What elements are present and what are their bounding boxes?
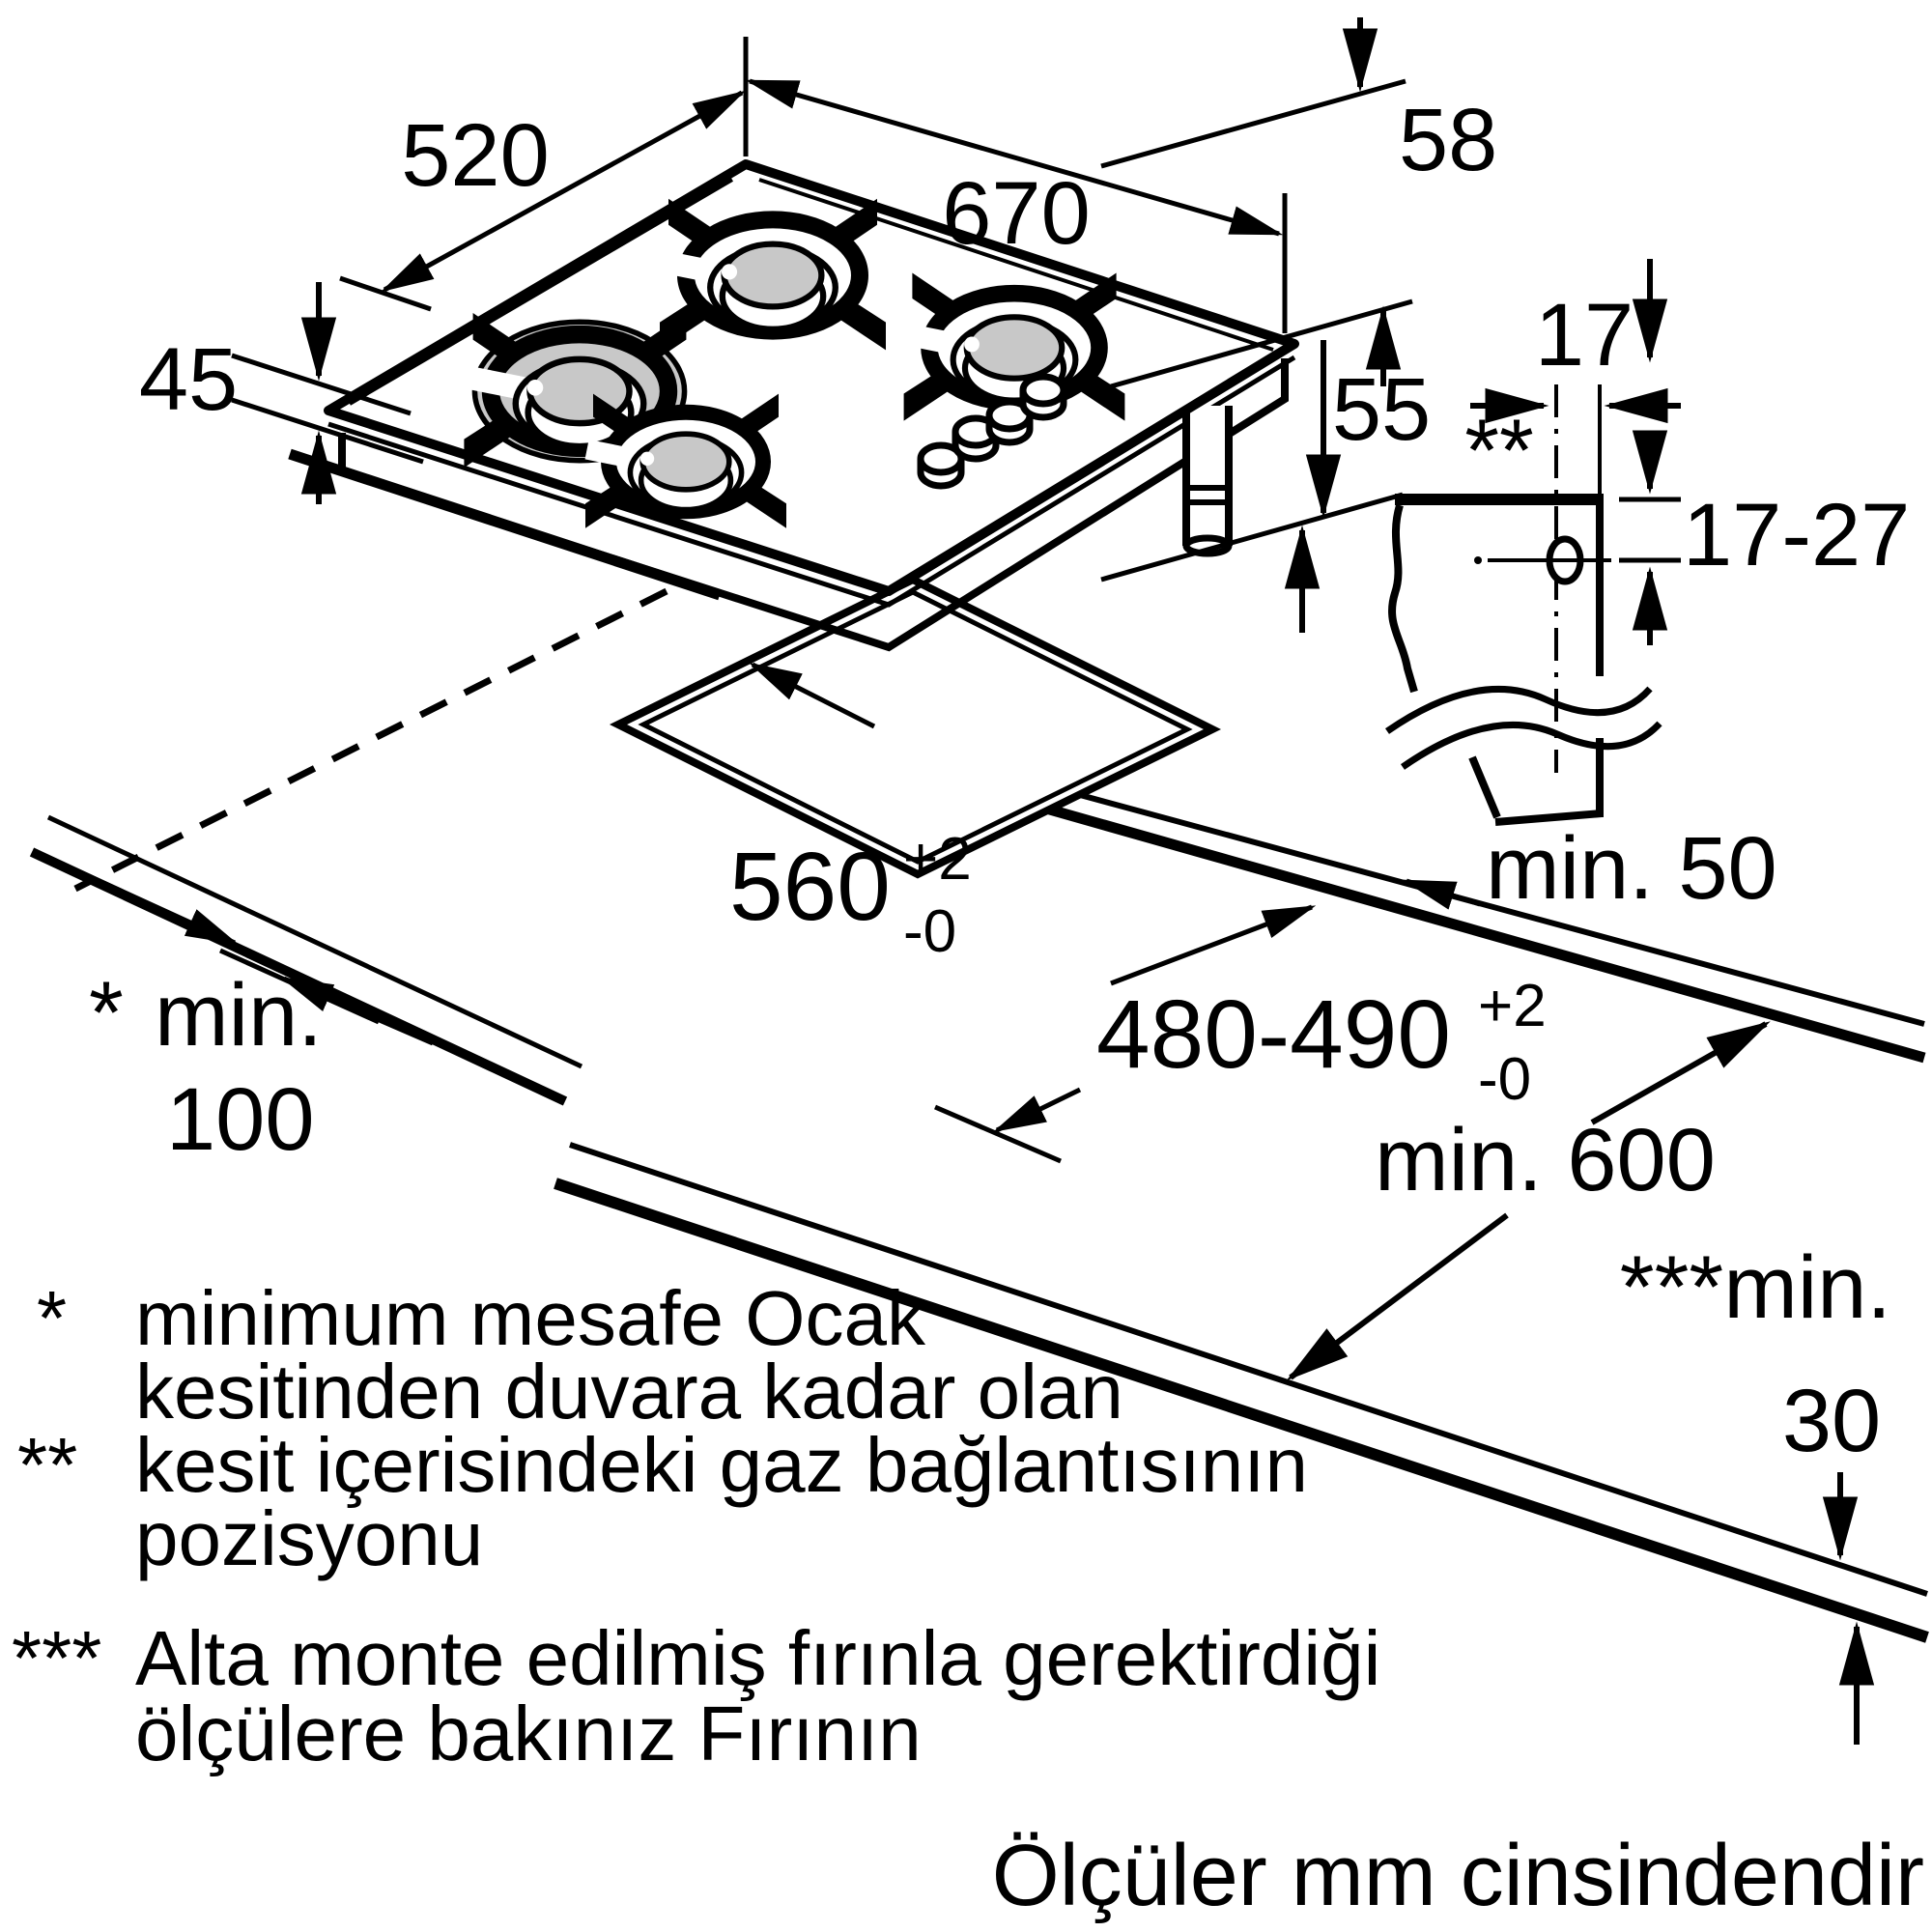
ext-line-support-top [1101, 81, 1406, 166]
dim-min50-arrow [1406, 881, 1480, 904]
footnotes: * minimum mesafe Ocak kesitinden duvara … [12, 1275, 1924, 1924]
units-note: Ölçüler mm cinsindendir [992, 1828, 1924, 1924]
clearance-wall-value: 100 [166, 1070, 315, 1169]
ext-line-left-corner [340, 278, 431, 309]
dim-560-tol-plus: +2 [903, 826, 972, 893]
dim-min600-arrow-upper [1592, 1024, 1766, 1122]
ext-line-480 [935, 1107, 1061, 1161]
footnote-3-line-1: Alta monte edilmiş fırınla gerektirdiği [135, 1615, 1380, 1701]
burner-back [660, 199, 886, 351]
footnote-3-marker: *** [12, 1615, 101, 1701]
burner-right [904, 273, 1125, 421]
clearance-min50-label: min. 50 [1486, 819, 1777, 918]
dim-17-27-label: 17-27 [1683, 486, 1910, 584]
dim-480-tol-minus: -0 [1478, 1046, 1531, 1113]
hob-edge-projection-dashed [75, 591, 667, 889]
footnote-1-marker: * [37, 1275, 67, 1361]
dim-480-tol-plus: +2 [1478, 973, 1547, 1039]
dim-560-label: 560 [729, 833, 891, 941]
section-tail-left-edge [1472, 757, 1497, 817]
dim-min600-arrow-lower [1291, 1215, 1507, 1378]
hob-isometric-view [290, 164, 1294, 647]
clearance-wall-star: * [89, 964, 124, 1063]
clearance-wall-min-label: min. [155, 966, 323, 1065]
centerline-dot [1474, 556, 1482, 564]
dim-min100-arrow-upper [66, 866, 235, 943]
clearance-min600-label: min. 600 [1375, 1111, 1716, 1209]
burner-front [585, 394, 786, 528]
dim-670-label: 670 [942, 164, 1091, 263]
dim-480-arrow-lower [997, 1090, 1080, 1130]
section-cut-edge [1392, 505, 1414, 692]
dim-520-label: 520 [401, 106, 550, 205]
hob-gas-pipe [1186, 406, 1229, 554]
clearance-front-stars-label: ***min. [1620, 1238, 1891, 1337]
diagram-page: 520 670 58 45 55 17 ** 17-27 560 +2 -0 4… [0, 0, 1932, 1932]
section-break-line-2 [1403, 724, 1660, 767]
dim-480-arrow-upper [1111, 907, 1312, 983]
footnote-2-marker: ** [17, 1422, 77, 1508]
installation-diagram: 520 670 58 45 55 17 ** 17-27 560 +2 -0 4… [0, 0, 1932, 1932]
knob [1023, 377, 1064, 417]
clearance-front-value: 30 [1782, 1372, 1881, 1470]
section-marker-label: ** [1464, 402, 1534, 500]
footnote-3-line-2: ölçülere bakınız Fırının [135, 1690, 922, 1776]
dim-55-label: 55 [1332, 360, 1431, 459]
dim-45-label: 45 [139, 330, 238, 429]
dim-58-label: 58 [1399, 91, 1497, 189]
dim-560-tol-minus: -0 [903, 898, 956, 965]
footnote-2-line-2: pozisyonu [135, 1495, 483, 1581]
dim-480-label: 480-490 [1096, 980, 1451, 1089]
ext-line-pipe-bottom [1101, 495, 1403, 580]
dim-17-label: 17 [1535, 286, 1634, 384]
